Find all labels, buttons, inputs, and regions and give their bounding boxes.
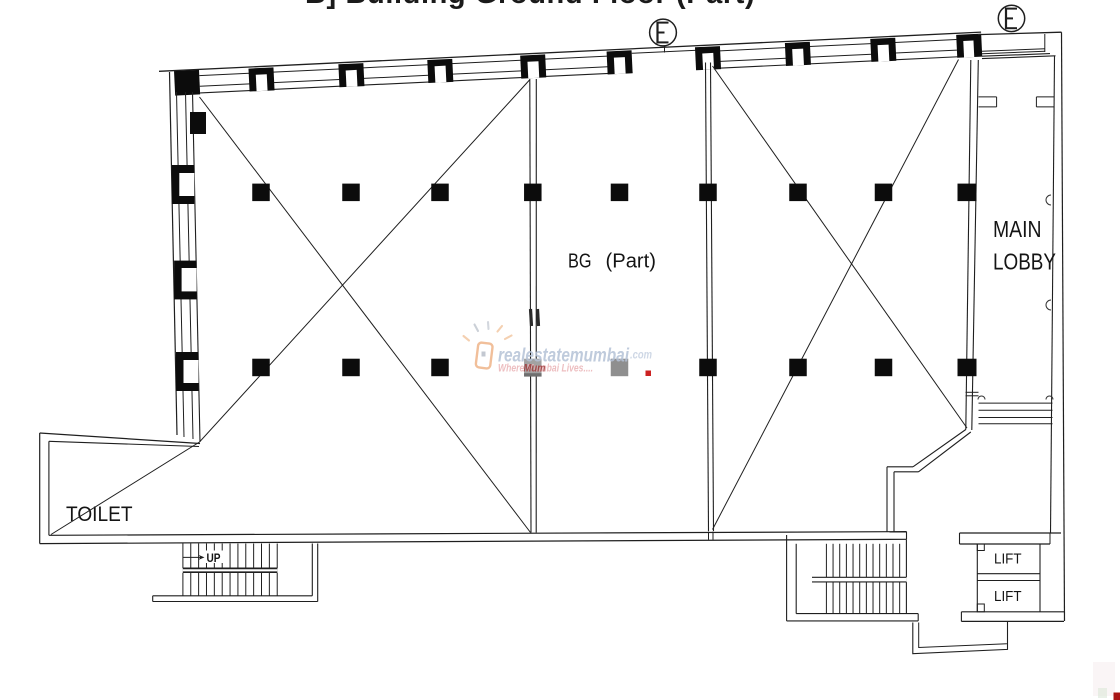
svg-text:.com: .com — [630, 350, 652, 362]
svg-text:Mum: Mum — [524, 363, 546, 375]
svg-text:Where Mumbai Lives....: Where Mumbai Lives.... — [498, 363, 593, 375]
svg-text:LIFT: LIFT — [994, 588, 1022, 605]
svg-text:LOBBY: LOBBY — [993, 249, 1056, 275]
svg-text:LIFT: LIFT — [994, 551, 1022, 568]
svg-text:MAIN: MAIN — [993, 216, 1042, 242]
svg-text:TOILET: TOILET — [66, 503, 133, 526]
svg-text:BG: BG — [568, 250, 592, 272]
svg-text:UP: UP — [207, 553, 221, 565]
svg-text:(Part): (Part) — [606, 250, 657, 272]
